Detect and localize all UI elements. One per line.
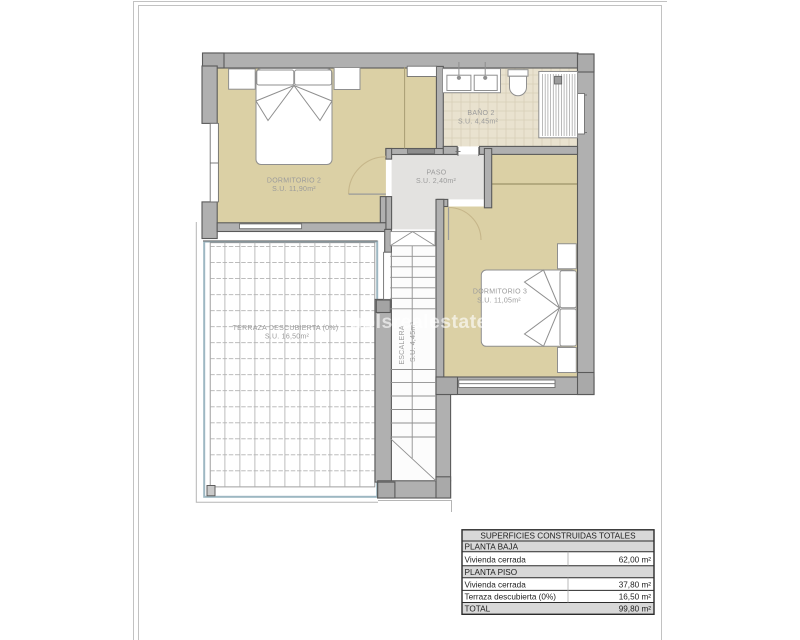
svg-text:BAÑO 2: BAÑO 2 [467, 108, 494, 117]
svg-text:16,50 m²: 16,50 m² [619, 593, 652, 602]
svg-text:Terraza descubierta (0%): Terraza descubierta (0%) [465, 593, 557, 602]
svg-text:DORMITORIO 3: DORMITORIO 3 [473, 289, 527, 296]
svg-text:PLANTA PISO: PLANTA PISO [465, 568, 518, 577]
svg-text:99,80 m²: 99,80 m² [619, 605, 652, 614]
svg-text:Vivienda cerrada: Vivienda cerrada [465, 555, 527, 564]
svg-text:TOTAL: TOTAL [465, 605, 491, 614]
svg-text:bolsrealestate: bolsrealestate [351, 311, 488, 333]
svg-text:Vivienda cerrada: Vivienda cerrada [465, 580, 527, 589]
svg-text:S.U. 2,40m²: S.U. 2,40m² [416, 178, 457, 185]
svg-text:TERRAZA DESCUBIERTA (0%): TERRAZA DESCUBIERTA (0%) [233, 325, 339, 332]
svg-text:PASO: PASO [427, 170, 447, 177]
svg-text:PLANTA BAJA: PLANTA BAJA [465, 543, 519, 552]
svg-text:S.U. 16,50m²: S.U. 16,50m² [265, 334, 310, 341]
svg-text:S.U. 11,90m²: S.U. 11,90m² [272, 186, 316, 193]
svg-text:SUPERFICIES CONSTRUIDAS TOTALE: SUPERFICIES CONSTRUIDAS TOTALES [480, 532, 636, 541]
svg-text:37,80 m²: 37,80 m² [619, 580, 652, 589]
svg-text:62,00 m²: 62,00 m² [619, 555, 652, 564]
svg-text:S.U. 4,45m²: S.U. 4,45m² [458, 119, 499, 126]
svg-text:DORMITORIO 2: DORMITORIO 2 [267, 178, 321, 185]
svg-text:S.U. 11,05m²: S.U. 11,05m² [477, 298, 521, 305]
